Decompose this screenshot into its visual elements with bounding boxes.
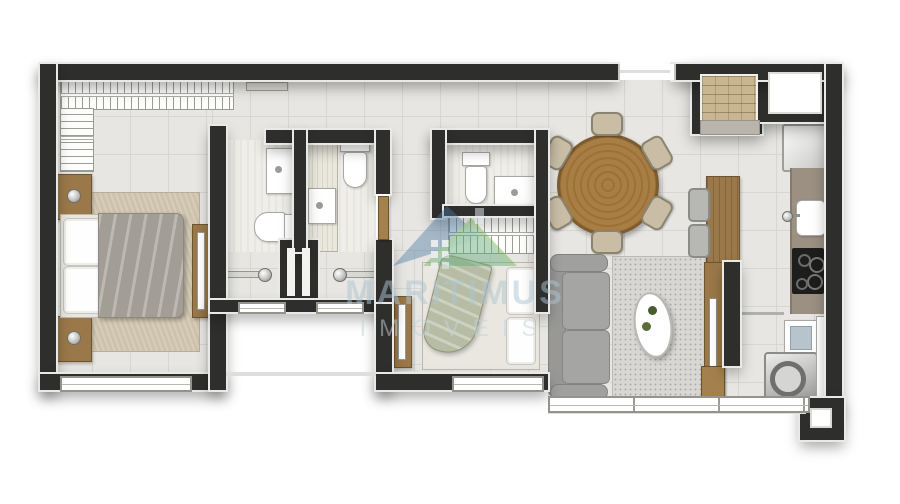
pillow-icon (63, 266, 102, 314)
wall-left (40, 64, 56, 390)
door-leaf-icon (344, 271, 378, 278)
faucet-icon (316, 202, 323, 209)
wall-bathB-right (376, 130, 390, 194)
toilet-icon (254, 212, 286, 242)
blanket-icon (98, 213, 184, 318)
wall-bedroom1-hall (210, 126, 226, 312)
hall-window-icon (238, 302, 286, 314)
sofa-cushion (562, 330, 610, 384)
pillow-icon (63, 218, 102, 266)
window-icon (452, 376, 544, 392)
nightstand-knob-icon (67, 331, 81, 345)
notch-sill (226, 372, 376, 376)
wardrobe-hangers-icon (60, 80, 234, 110)
dresser-mirror-glass (197, 232, 205, 310)
burner-icon (807, 274, 823, 290)
wall-bathC-bottom (444, 206, 536, 216)
pillar-core (810, 408, 832, 428)
wall-bathC-top (432, 130, 548, 143)
laundry-tank-basin (790, 326, 812, 350)
sofa-armrest (550, 254, 608, 272)
burner-icon (809, 257, 825, 273)
wardrobe-return-icon (60, 108, 94, 172)
faucet-icon (511, 189, 518, 196)
sofa-cushion (562, 272, 610, 330)
dining-chair-icon (591, 112, 623, 136)
bar-stool-icon (688, 188, 710, 222)
dresser-mirror-glass (398, 304, 406, 360)
floor-plan-canvas: MARITIMUS IMÓVEIS (0, 0, 900, 504)
window-icon (60, 376, 192, 392)
wardrobe-hangers-icon (448, 216, 538, 254)
wall-bathC-left (432, 130, 445, 218)
hall-window-icon (316, 302, 364, 314)
toilet-icon (343, 152, 367, 188)
toilet-icon (465, 166, 487, 204)
nightstand-knob-icon (67, 189, 81, 203)
pillow-icon (506, 317, 536, 365)
wall-tv-partition (724, 262, 740, 366)
wall-bedroom2-right (536, 130, 548, 312)
wall-hall-right (376, 240, 392, 310)
dining-chair-icon (591, 230, 623, 254)
duct-bar (302, 248, 310, 296)
bar-counter-icon (706, 176, 740, 264)
wall-bath-middle (294, 130, 306, 252)
washer-door-icon (770, 361, 806, 397)
door-knob-icon (333, 268, 347, 282)
duct-bar (287, 248, 295, 296)
door-knob-icon (258, 268, 272, 282)
clothesline-icon (742, 312, 784, 315)
wall-right (826, 64, 842, 412)
wall-notch-left (210, 308, 226, 390)
burner-icon (796, 278, 808, 290)
wall-top-left (40, 64, 618, 80)
plant-icon (648, 306, 657, 315)
door-leaf-icon (378, 196, 389, 240)
bbq-hearth (700, 120, 760, 135)
bbq-brick-niche-icon (700, 74, 758, 124)
toilet-tank-icon (462, 152, 490, 166)
faucet-handle-icon (782, 211, 793, 222)
tv-icon (709, 298, 717, 374)
sliding-window-icon (548, 396, 810, 413)
wall-bath-top (266, 130, 378, 143)
kitchen-sink-icon (796, 200, 826, 236)
entry-sill (620, 70, 670, 73)
refrigerator-icon (782, 124, 832, 172)
pillow-icon (506, 267, 536, 315)
plant-icon (642, 322, 651, 331)
door-leaf-icon (246, 82, 288, 91)
window-icon (768, 72, 822, 114)
bar-stool-icon (688, 224, 710, 258)
faucet-icon (275, 166, 282, 173)
